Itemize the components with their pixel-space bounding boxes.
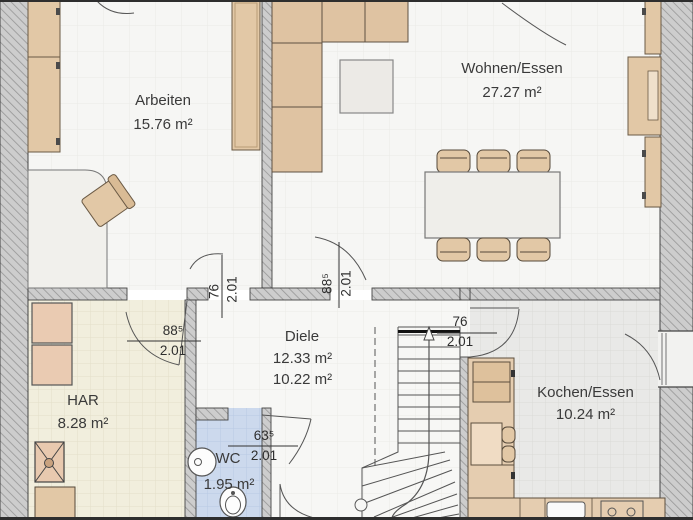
arbeiten-area: 15.76 m² — [108, 116, 218, 133]
dining-chairs-top — [437, 150, 550, 173]
wc-area: 1.95 m² — [196, 476, 262, 493]
kochen-door-width: 76 — [431, 314, 489, 330]
har-door-width: 88⁵ — [144, 323, 202, 339]
desk — [28, 170, 107, 288]
arbeiten-door-height: 2.01 — [225, 268, 240, 312]
border-top — [0, 0, 693, 2]
har-cabinet — [35, 487, 75, 518]
diele-area-upper: 12.33 m² — [260, 350, 345, 367]
kitchen-counter-bottom — [468, 498, 665, 520]
exterior-wall-left — [0, 0, 28, 520]
arbeiten-door-width: 76 — [207, 270, 222, 314]
wall-mid-seg3 — [250, 288, 330, 300]
wall-mid-seg4 — [372, 288, 460, 300]
diele-label: Diele — [262, 328, 342, 345]
kochen-label: Kochen/Essen — [513, 384, 658, 401]
wohnen-label: Wohnen/Essen — [452, 60, 572, 77]
wall-stairs-kochen-top — [460, 288, 470, 300]
har-label: HAR — [53, 392, 113, 409]
exterior-wall-right — [660, 0, 693, 520]
kochen-area: 10.24 m² — [513, 406, 658, 423]
wohnen-door-height: 2.01 — [339, 262, 354, 306]
floor-plan: Arbeiten 15.76 m² Wohnen/Essen 27.27 m² … — [0, 0, 693, 520]
cabinet-partition — [232, 0, 260, 150]
coffee-table — [340, 60, 393, 113]
dining-chairs-bottom — [437, 238, 550, 261]
arbeiten-label: Arbeiten — [108, 92, 218, 109]
dining-table — [425, 172, 560, 238]
har-area: 8.28 m² — [43, 415, 123, 432]
wc-door-width: 63⁵ — [235, 428, 293, 444]
dryer — [32, 345, 72, 385]
wall-mid-seg2 — [187, 288, 208, 300]
kochen-exterior-door-opening — [658, 331, 693, 387]
washer — [32, 303, 72, 343]
diele-area-lower: 10.22 m² — [260, 371, 345, 388]
utility-sink — [35, 442, 64, 482]
wall-arbeiten-wohnen — [262, 0, 272, 288]
wohnen-door-width: 88⁵ — [320, 262, 335, 306]
har-door-height: 2.01 — [144, 343, 202, 359]
arbeiten-shelf — [28, 0, 60, 152]
wall-mid-seg1 — [28, 288, 127, 300]
wall-mid-seg5 — [470, 288, 660, 300]
kochen-door-height: 2.01 — [431, 334, 489, 350]
kitchen-sink — [547, 502, 585, 518]
wohnen-area: 27.27 m² — [452, 84, 572, 101]
stairs-handrail-post — [355, 499, 367, 511]
wc-door-height: 2.01 — [235, 448, 293, 464]
floor-plan-drawing — [0, 0, 693, 520]
wall-wc-top — [196, 408, 228, 420]
